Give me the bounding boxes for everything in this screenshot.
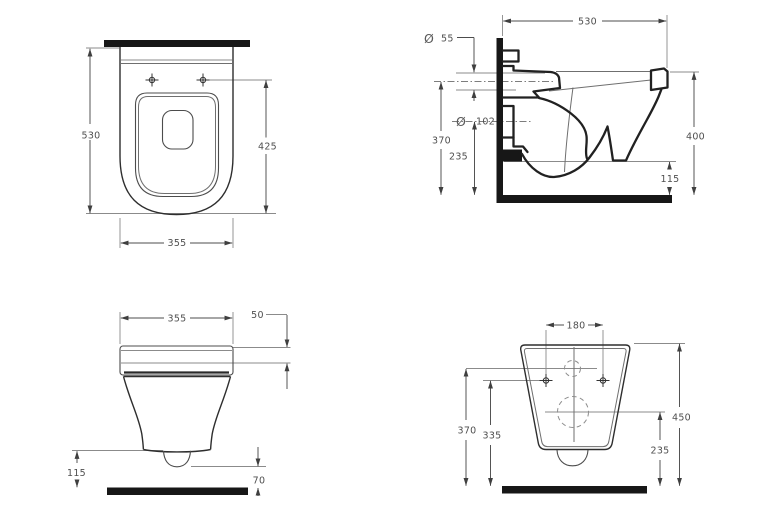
side-floor-bar	[497, 195, 673, 203]
plan-fixing-hole-right	[197, 74, 210, 87]
front-view: 355 50 115 70	[67, 310, 291, 496]
side-dim-clearance-label: 115	[660, 174, 679, 185]
front-extension-lines	[72, 312, 291, 467]
rear-body-outline-inner	[524, 349, 626, 447]
front-dim-outlet-clearance-label: 70	[253, 476, 266, 487]
plan-fixing-hole-left	[146, 74, 159, 87]
side-rim-inner-line	[549, 80, 651, 91]
rear-fixing-hole-left	[540, 374, 553, 387]
side-mounting-foot	[503, 150, 522, 162]
side-dim-outlet-height-label: 235	[449, 152, 468, 163]
side-inlet-diameter-label: 55	[441, 34, 454, 45]
side-inlet-diameter-symbol: Ø	[424, 31, 434, 46]
drawing-canvas: 530 425 355 530 Ø 55 370 Ø	[0, 0, 764, 520]
rear-extension-lines	[466, 330, 685, 412]
rear-dim-spacing-label: 180	[566, 321, 585, 332]
front-body-outline	[124, 377, 231, 452]
rear-dim-outlet-height-label: 235	[650, 446, 669, 457]
front-outlet-bump	[164, 451, 191, 467]
technical-drawing-sheet: 530 425 355 530 Ø 55 370 Ø	[0, 0, 764, 520]
plan-body-outline	[120, 47, 233, 215]
side-inlet-stub	[503, 51, 519, 62]
plan-dim-width-label: 355	[167, 238, 186, 249]
plan-extension-lines	[86, 48, 276, 248]
rear-outlet-bump	[557, 450, 588, 466]
plan-dim-depth-label: 530	[81, 131, 100, 142]
rear-dim-inlet-height-label: 370	[457, 426, 476, 437]
side-trap-line	[565, 88, 574, 173]
plan-dim-fixing-label: 425	[258, 142, 277, 153]
plan-wall-bar	[104, 40, 250, 47]
side-view: 530 Ø 55 370 Ø 102 235 400 115	[424, 15, 705, 203]
side-bowl-inner-wall	[539, 98, 587, 159]
rear-floor-bar	[502, 486, 647, 494]
rear-dim-fixing-height-label: 335	[482, 431, 501, 442]
side-wall-bar	[497, 38, 504, 203]
side-dim-height-label: 400	[686, 132, 705, 143]
front-floor-bar	[107, 488, 248, 496]
side-outlet-diameter-symbol: Ø	[456, 114, 466, 129]
rear-view: 180 370 335 450 235	[457, 321, 691, 494]
plan-view: 530 425 355	[81, 40, 277, 249]
plan-bowl-opening	[163, 111, 194, 150]
side-dim-inlet-height-label: 370	[432, 136, 451, 147]
rear-dim-height-label: 450	[672, 413, 691, 424]
front-dim-clearance-label: 115	[67, 468, 86, 479]
rear-fixing-hole-right	[597, 374, 610, 387]
plan-seat-outline-outer	[136, 93, 219, 197]
side-front-rim-block	[651, 69, 668, 91]
front-dim-seat-thickness-label: 50	[251, 310, 264, 321]
front-dim-width-label: 355	[167, 314, 186, 325]
side-dim-depth-label: 530	[578, 17, 597, 28]
side-outlet-diameter-label: 102	[476, 117, 495, 128]
